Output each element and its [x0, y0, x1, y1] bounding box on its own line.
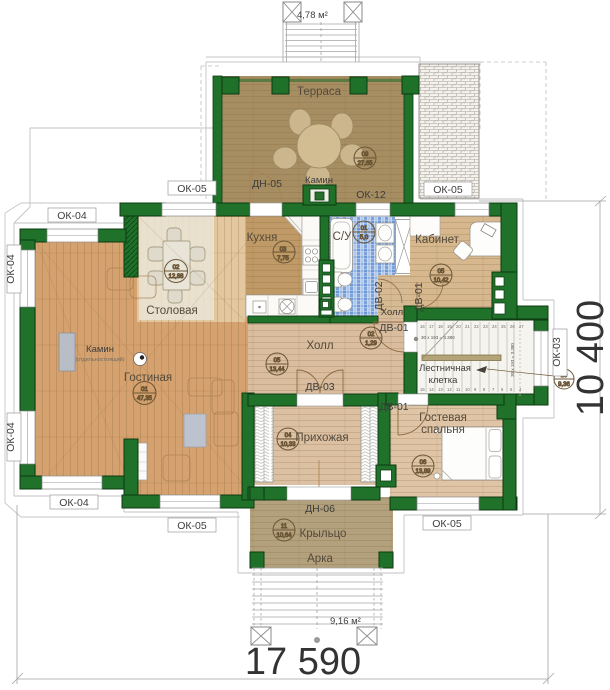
svg-text:17 590: 17 590	[245, 641, 361, 683]
svg-text:03: 03	[280, 247, 287, 253]
svg-text:С/У: С/У	[333, 231, 353, 243]
svg-text:13: 13	[438, 387, 443, 392]
svg-text:10,33: 10,33	[280, 442, 296, 448]
svg-text:4,78 м²: 4,78 м²	[297, 10, 328, 21]
svg-text:25: 25	[501, 324, 506, 329]
svg-text:Гостевая: Гостевая	[419, 412, 467, 424]
svg-text:14: 14	[429, 387, 434, 392]
svg-text:12,88: 12,88	[168, 274, 184, 280]
svg-text:ДВ-01: ДВ-01	[379, 322, 408, 334]
svg-text:24: 24	[492, 324, 497, 329]
svg-text:спальня: спальня	[421, 424, 465, 436]
svg-text:47,35: 47,35	[137, 396, 153, 402]
svg-text:ДВ-01: ДВ-01	[379, 401, 408, 413]
svg-text:27,65: 27,65	[357, 161, 373, 167]
svg-text:ОК-05: ОК-05	[433, 184, 463, 196]
svg-text:09: 09	[362, 152, 369, 158]
svg-text:1,29: 1,29	[365, 341, 377, 347]
svg-text:12: 12	[447, 387, 452, 392]
svg-text:Кухня: Кухня	[247, 232, 278, 244]
svg-text:ДВ-02: ДВ-02	[373, 281, 385, 310]
svg-text:ОК-12: ОК-12	[356, 189, 386, 201]
svg-text:Прихожая: Прихожая	[295, 432, 348, 444]
svg-text:05: 05	[274, 358, 281, 364]
svg-text:ДН-06: ДН-06	[305, 503, 335, 515]
svg-text:19: 19	[447, 324, 452, 329]
svg-text:02: 02	[173, 265, 180, 271]
svg-text:02: 02	[368, 332, 375, 338]
svg-text:ОК-04: ОК-04	[5, 254, 17, 284]
svg-text:05: 05	[438, 269, 445, 275]
svg-text:11: 11	[456, 387, 461, 392]
svg-text:01: 01	[361, 226, 368, 232]
svg-text:16: 16	[420, 324, 425, 329]
svg-text:17: 17	[429, 324, 434, 329]
svg-text:11: 11	[281, 524, 288, 530]
svg-text:Холл: Холл	[306, 340, 333, 352]
svg-text:10: 10	[465, 387, 470, 392]
svg-text:ДВ-03: ДВ-03	[305, 381, 334, 393]
svg-text:ОК-05: ОК-05	[177, 520, 207, 532]
svg-text:клетка: клетка	[429, 375, 458, 386]
svg-text:23: 23	[483, 324, 488, 329]
svg-text:04: 04	[285, 433, 292, 439]
svg-text:ОК-04: ОК-04	[57, 210, 87, 222]
svg-text:ОК-05: ОК-05	[432, 518, 462, 530]
svg-text:10,64: 10,64	[276, 533, 292, 539]
svg-text:5,0: 5,0	[360, 235, 369, 241]
svg-text:Столовая: Столовая	[146, 305, 197, 317]
svg-text:10 400: 10 400	[570, 300, 610, 416]
svg-text:ДН-05: ДН-05	[252, 178, 282, 190]
svg-text:9,16 м²: 9,16 м²	[330, 616, 361, 627]
svg-text:10,42: 10,42	[433, 278, 449, 284]
svg-text:22: 22	[474, 324, 479, 329]
svg-text:ДВ-01: ДВ-01	[413, 282, 425, 311]
svg-text:13,89: 13,89	[415, 469, 431, 475]
svg-text:(отдельностоящий): (отдельностоящий)	[75, 356, 124, 363]
svg-text:20: 20	[456, 324, 461, 329]
svg-text:Крыльцо: Крыльцо	[300, 528, 347, 540]
svg-text:27: 27	[519, 324, 524, 329]
svg-text:26: 26	[510, 324, 515, 329]
svg-text:13,44: 13,44	[269, 367, 285, 373]
svg-text:ОК-03: ОК-03	[551, 337, 563, 367]
svg-text:15: 15	[420, 387, 425, 392]
svg-text:Арка: Арка	[307, 553, 333, 565]
svg-text:Гостиная: Гостиная	[124, 372, 172, 384]
svg-text:Камин: Камин	[86, 344, 114, 355]
svg-text:Терраса: Терраса	[297, 86, 342, 98]
svg-text:ОК-04: ОК-04	[59, 497, 89, 509]
svg-text:30 х 193 = 3.380: 30 х 193 = 3.380	[421, 335, 455, 340]
svg-text:Лестничная: Лестничная	[419, 363, 471, 374]
svg-text:06: 06	[420, 460, 427, 466]
svg-text:9,36: 9,36	[558, 382, 570, 388]
svg-text:01: 01	[141, 387, 148, 393]
svg-text:ОК-04: ОК-04	[5, 422, 17, 452]
svg-text:Кабинет: Кабинет	[415, 234, 459, 246]
svg-text:ОК-05: ОК-05	[177, 183, 207, 195]
svg-text:18: 18	[438, 324, 443, 329]
svg-text:7,75: 7,75	[277, 256, 289, 262]
svg-text:21: 21	[465, 324, 470, 329]
svg-text:Камин: Камин	[305, 175, 333, 186]
